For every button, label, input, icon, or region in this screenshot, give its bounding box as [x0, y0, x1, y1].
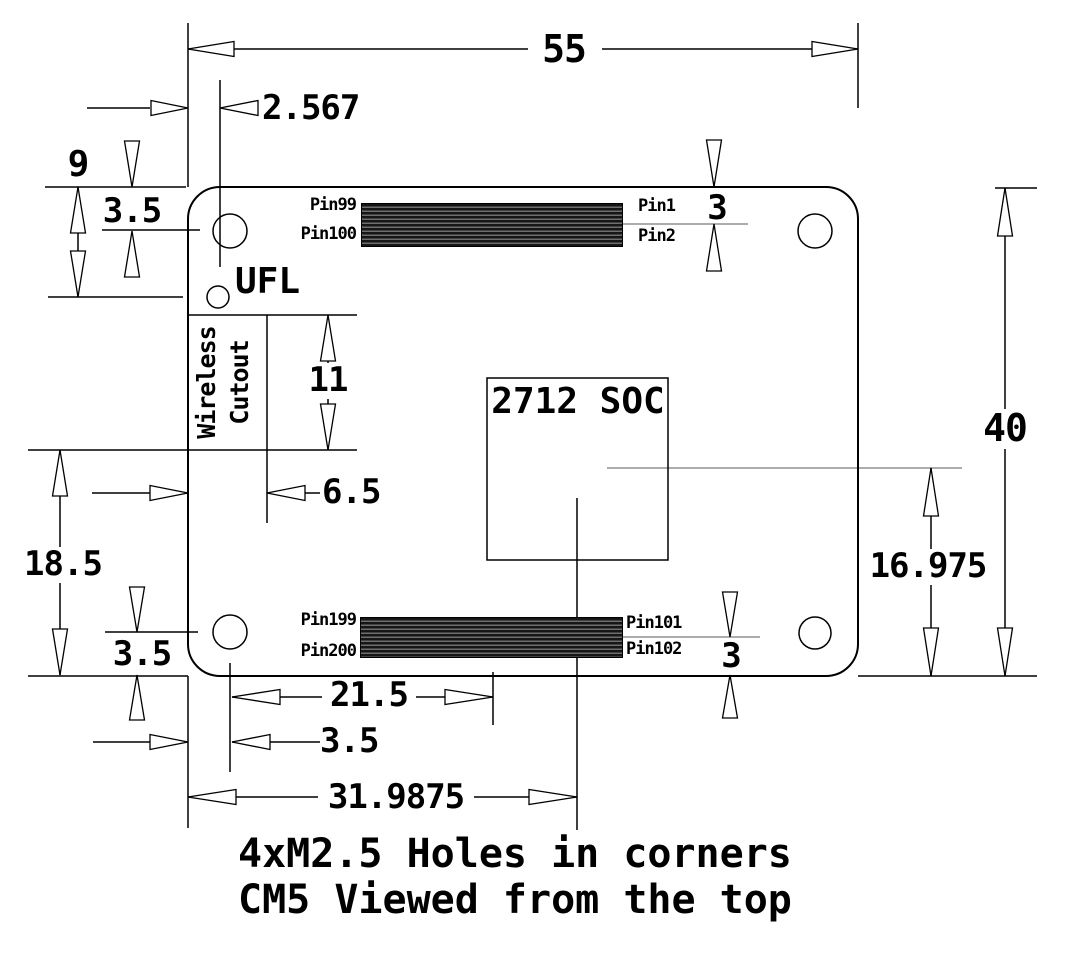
arrowhead — [998, 188, 1013, 236]
mechanical-drawing-canvas: 55 2.567 9 3.5 3 UFL 11 6.5 18.5 3.5 21.… — [0, 0, 1087, 964]
arrowhead — [723, 675, 738, 718]
arrowhead — [998, 628, 1013, 676]
arrowhead — [220, 101, 258, 116]
pin1-label: Pin1 — [638, 198, 718, 216]
arrowhead — [125, 141, 140, 187]
wireless-cutout-line1: Wireless — [192, 326, 221, 438]
mounting-hole-bottom-left — [213, 615, 247, 649]
arrowhead — [267, 486, 305, 501]
pin199-label: Pin199 — [290, 612, 356, 630]
pin200-label: Pin200 — [290, 643, 356, 661]
arrowhead — [150, 486, 188, 501]
arrowhead — [529, 790, 577, 805]
dim-cutout-width-label: 6.5 — [322, 475, 412, 511]
ufl-connector-label: UFL — [235, 263, 331, 301]
wireless-cutout-label: Wireless Cutout — [190, 315, 256, 450]
pin101-label: Pin101 — [626, 615, 706, 633]
arrowhead — [71, 187, 86, 233]
dim-board-height-label: 40 — [980, 409, 1030, 449]
dim-ufl-offset-x-label: 2.567 — [262, 91, 392, 127]
arrowhead — [151, 101, 188, 116]
pin100-label: Pin100 — [290, 226, 356, 244]
arrowhead — [321, 404, 336, 450]
ufl-connector-circle — [207, 286, 229, 308]
dim-cutout-to-bottom-label: 18.5 — [18, 547, 108, 583]
pin102-label: Pin102 — [626, 641, 706, 659]
arrowhead — [188, 790, 236, 805]
dim-bottom-hole-offset-label: 3.5 — [104, 637, 180, 673]
arrowhead — [445, 690, 493, 705]
bottom-board-to-board-connector — [360, 617, 623, 658]
caption-holes-note: 4xM2.5 Holes in corners — [238, 833, 792, 875]
arrowhead — [812, 42, 858, 57]
arrowhead — [71, 251, 86, 297]
dim-ufl-offset-y-label: 9 — [60, 146, 96, 184]
arrowhead — [125, 231, 140, 277]
arrowhead — [232, 735, 270, 750]
dim-cutout-height-label: 11 — [303, 363, 353, 399]
pin99-label: Pin99 — [294, 197, 356, 215]
arrowhead — [130, 587, 145, 632]
arrowhead — [924, 468, 939, 516]
soc-label: 2712 SOC — [487, 383, 669, 421]
arrowhead — [130, 675, 145, 720]
arrowhead — [232, 690, 280, 705]
caption-view-note: CM5 Viewed from the top — [238, 879, 792, 921]
arrowhead — [924, 628, 939, 676]
arrowhead — [188, 42, 234, 57]
mounting-hole-bottom-right — [799, 617, 831, 649]
dim-soc-center-y-label: 16.975 — [860, 549, 996, 585]
pin2-label: Pin2 — [638, 228, 718, 246]
top-board-to-board-connector — [361, 203, 623, 247]
dim-hole-offset-x-label: 3.5 — [320, 724, 410, 760]
arrowhead — [707, 140, 722, 187]
dim-hole-to-connector-label: 21.5 — [322, 678, 416, 714]
dim-bottom-pin-row-offset-label: 3 — [712, 639, 750, 675]
dim-board-width-label: 55 — [538, 30, 590, 70]
mounting-hole-top-right — [798, 214, 832, 248]
wireless-cutout-line2: Cutout — [225, 340, 254, 424]
arrowhead — [321, 315, 336, 361]
drawing-linework — [0, 0, 1087, 964]
arrowhead — [53, 629, 68, 675]
dim-soc-center-x-label: 31.9875 — [318, 780, 474, 816]
arrowhead — [723, 592, 738, 637]
mounting-hole-top-left — [213, 214, 247, 248]
dim-top-hole-offset-label: 3.5 — [96, 194, 168, 230]
arrowhead — [53, 450, 68, 496]
arrowhead — [150, 735, 188, 750]
